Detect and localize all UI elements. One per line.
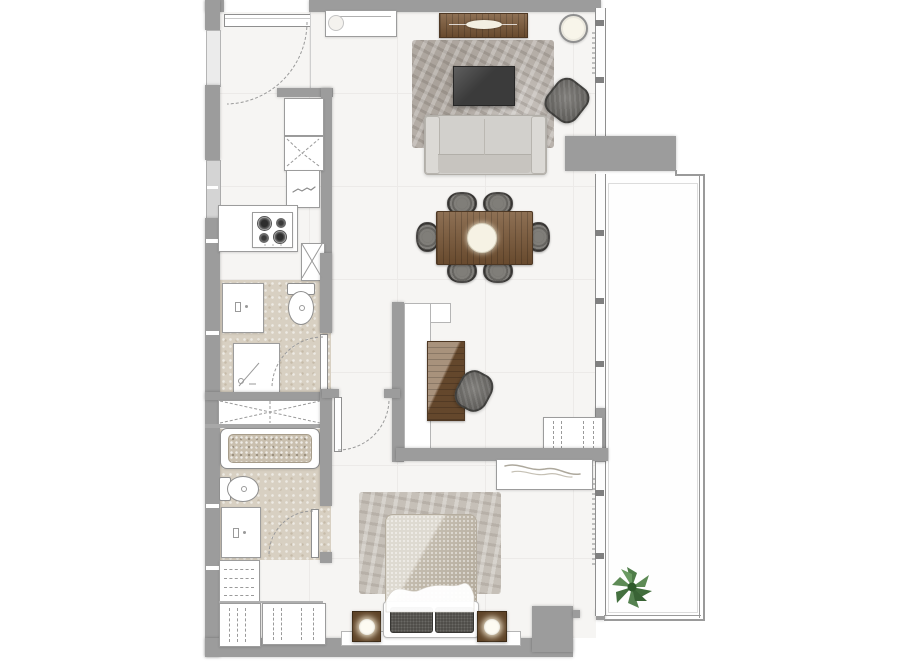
bathtub-inner [228,434,312,463]
window-mullion-4 [595,298,604,304]
entry-console [325,10,397,37]
master-toilet-flush [241,486,247,492]
window-mullion-1 [595,20,604,26]
media-console-decor [466,20,502,29]
shelf-unit [219,560,260,603]
bath-east-wall-mid [320,389,332,506]
balcony-door-jamb-1 [573,610,580,618]
left-wall-window-1 [206,30,221,87]
master-vanity-faucet [233,528,239,538]
balcony-edge-bottom-outer [604,619,705,621]
lamp-right [484,619,500,635]
bedroom-door-jamb-right [384,389,400,398]
cooktop-knobs [261,244,283,246]
shower-tray [233,343,280,393]
window-spec-text-upper [592,32,595,74]
floor-plan-canvas [0,0,916,668]
shelf-dash-4 [224,595,254,596]
bedroom-dresser [496,459,593,490]
master-vanity-control [243,531,246,534]
burner-small-2 [259,233,269,243]
guest-bath-bottom-wall [205,392,331,400]
balcony-edge-right-inner [699,176,700,618]
kitchen-corner-unit [284,136,324,171]
nightstand-left [352,611,381,642]
study-stub-wall [392,302,404,462]
bathtub [220,428,320,469]
entry-console-shelf-line [335,16,391,17]
left-wall-slot-4 [206,566,219,570]
bath-east-wall-upper [320,253,332,333]
wardrobe-right-rail-3 [301,608,302,640]
entry-door-leaf [224,14,311,27]
guest-vanity [222,283,264,333]
window-spec-text-lower [592,478,595,568]
guest-vanity-control [245,305,248,308]
wardrobe-left-rail-1 [229,608,230,642]
shelf-dash-2 [224,578,254,579]
left-wall-mid [205,85,220,160]
guest-vanity-faucet [235,302,241,312]
balcony-edge-right-outer [703,174,705,620]
window-mullion-3 [595,230,604,236]
nightstand-right [477,611,507,642]
wardrobe-left-rail-3 [245,608,246,642]
bedroom-door-leaf [334,397,342,452]
window-mullion-7 [595,553,604,559]
kitchen-tall-cabinet [284,98,324,136]
left-wall-upper [205,0,220,30]
bedroom-corner-wall-block [532,606,573,652]
study-closet-rail-1 [553,421,554,449]
wardrobe-unit-left [219,603,261,647]
left-wall-slot-3 [206,504,219,508]
window-mullion-5 [595,361,604,367]
linen-closet [218,400,324,426]
kitchen-sink-unit [286,170,320,208]
media-console [439,13,528,38]
plant-center [628,583,637,592]
study-closet-rail-3 [583,421,584,449]
master-toilet-bowl [227,476,259,502]
sofa-seat-divider [484,119,485,155]
wardrobe-right-rail-2 [281,608,282,640]
bath-east-wall-stub [320,552,332,563]
bed-pillow-right [435,607,474,633]
coffee-table [453,66,515,106]
left-wall-lower [205,218,220,657]
master-vanity [221,507,261,558]
wardrobe-right-rail-1 [273,608,274,640]
entry-decor-bowl [328,15,344,31]
table-centerpiece [467,223,497,253]
guest-toilet-bowl [288,291,314,325]
bedroom-window-wall [595,174,606,616]
burner-small-1 [276,218,286,228]
bed-duvet [385,514,477,606]
sofa-arm-right [531,116,546,174]
window-mullion-6 [595,490,604,496]
burner-large-1 [257,216,272,231]
sofa [424,115,547,175]
entry-partition-line [310,12,311,93]
left-wall-slot-2 [206,331,219,335]
terrace-partition-wall [565,136,676,171]
guest-bath-door-leaf [320,334,328,391]
master-bath-door-leaf [311,509,319,558]
burner-large-2 [273,230,287,244]
balcony-plant [611,565,653,609]
lamp-left [359,619,375,635]
cooktop [252,212,293,248]
round-side-table [559,14,588,43]
wardrobe-unit-right [262,603,326,645]
sofa-backrest [438,154,531,173]
living-window-wall [595,8,606,136]
left-wall-window-2-glass [207,186,218,189]
shelf-dash-3 [224,587,254,588]
balcony-edge-bottom-inner [604,615,701,616]
wardrobe-right-rail-4 [313,608,314,640]
bed-pillow-left [390,607,433,633]
study-closet-rail-4 [593,421,594,449]
balcony-edge-top [676,174,705,176]
study-closet-rail-2 [561,421,562,449]
balcony-step-edge [675,170,677,176]
window-mullion-2 [595,77,604,83]
guest-toilet-flush [299,305,305,311]
balcony-inner-line [608,183,698,613]
shelf-dash-1 [224,569,254,570]
wardrobe-left-rail-2 [237,608,238,642]
